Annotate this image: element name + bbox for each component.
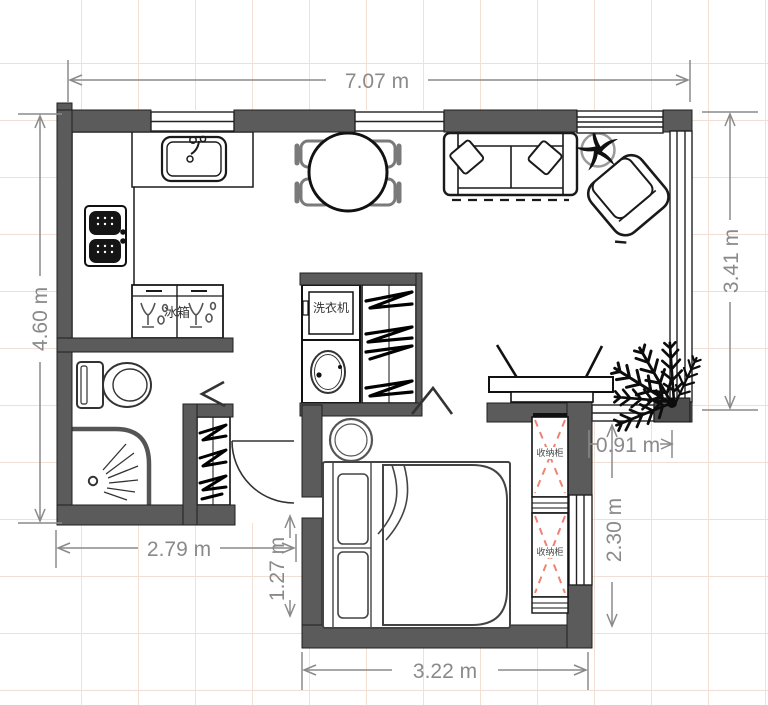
window-wide <box>577 111 663 133</box>
storage-label: 收纳柜 <box>536 447 563 458</box>
dim-label-bath-width: 2.79 m <box>147 538 211 561</box>
pillow <box>338 474 368 544</box>
storage-cabinet-top[interactable]: 收纳柜 <box>532 413 568 513</box>
dim-label-bedroom-width: 3.22 m <box>413 660 477 683</box>
washer-label: 洗衣机 <box>313 300 349 315</box>
stove[interactable] <box>85 206 126 266</box>
floorplan-drawing: 冰箱 <box>0 0 768 705</box>
fridge-cabinet[interactable]: 冰箱 <box>132 285 223 338</box>
bedside-table[interactable] <box>330 419 372 461</box>
window-bedroom <box>569 495 592 585</box>
dim-label-left-height: 4.60 m <box>29 287 52 351</box>
fridge-label: 冰箱 <box>164 305 190 320</box>
storage-label: 收纳柜 <box>536 546 563 557</box>
dim-label-total-width: 7.07 m <box>345 70 409 93</box>
wash-basin[interactable] <box>302 340 360 403</box>
dim-label-right-height: 3.41 m <box>720 229 743 293</box>
dim-label-bedroom-side: 2.30 m <box>603 498 626 562</box>
toilet[interactable] <box>77 362 151 408</box>
floorplan-canvas: 冰箱 <box>0 0 768 705</box>
dim-label-passage-width: 0.91 m <box>596 434 660 457</box>
blanket <box>383 465 507 625</box>
dining-table[interactable] <box>309 133 387 211</box>
kitchen-sink[interactable] <box>162 136 226 181</box>
window <box>355 112 444 131</box>
window <box>151 112 234 131</box>
sofa[interactable] <box>444 133 577 200</box>
storage-cabinet-bottom[interactable]: 收纳柜 <box>532 513 568 613</box>
hall-wardrobe[interactable] <box>362 285 416 403</box>
dim-label-entry-segment: 1.27 m <box>266 537 289 601</box>
pillow <box>338 552 368 618</box>
bath-wardrobe[interactable] <box>197 417 230 505</box>
washing-machine[interactable]: 洗衣机 <box>302 285 360 340</box>
bed[interactable] <box>323 462 510 628</box>
